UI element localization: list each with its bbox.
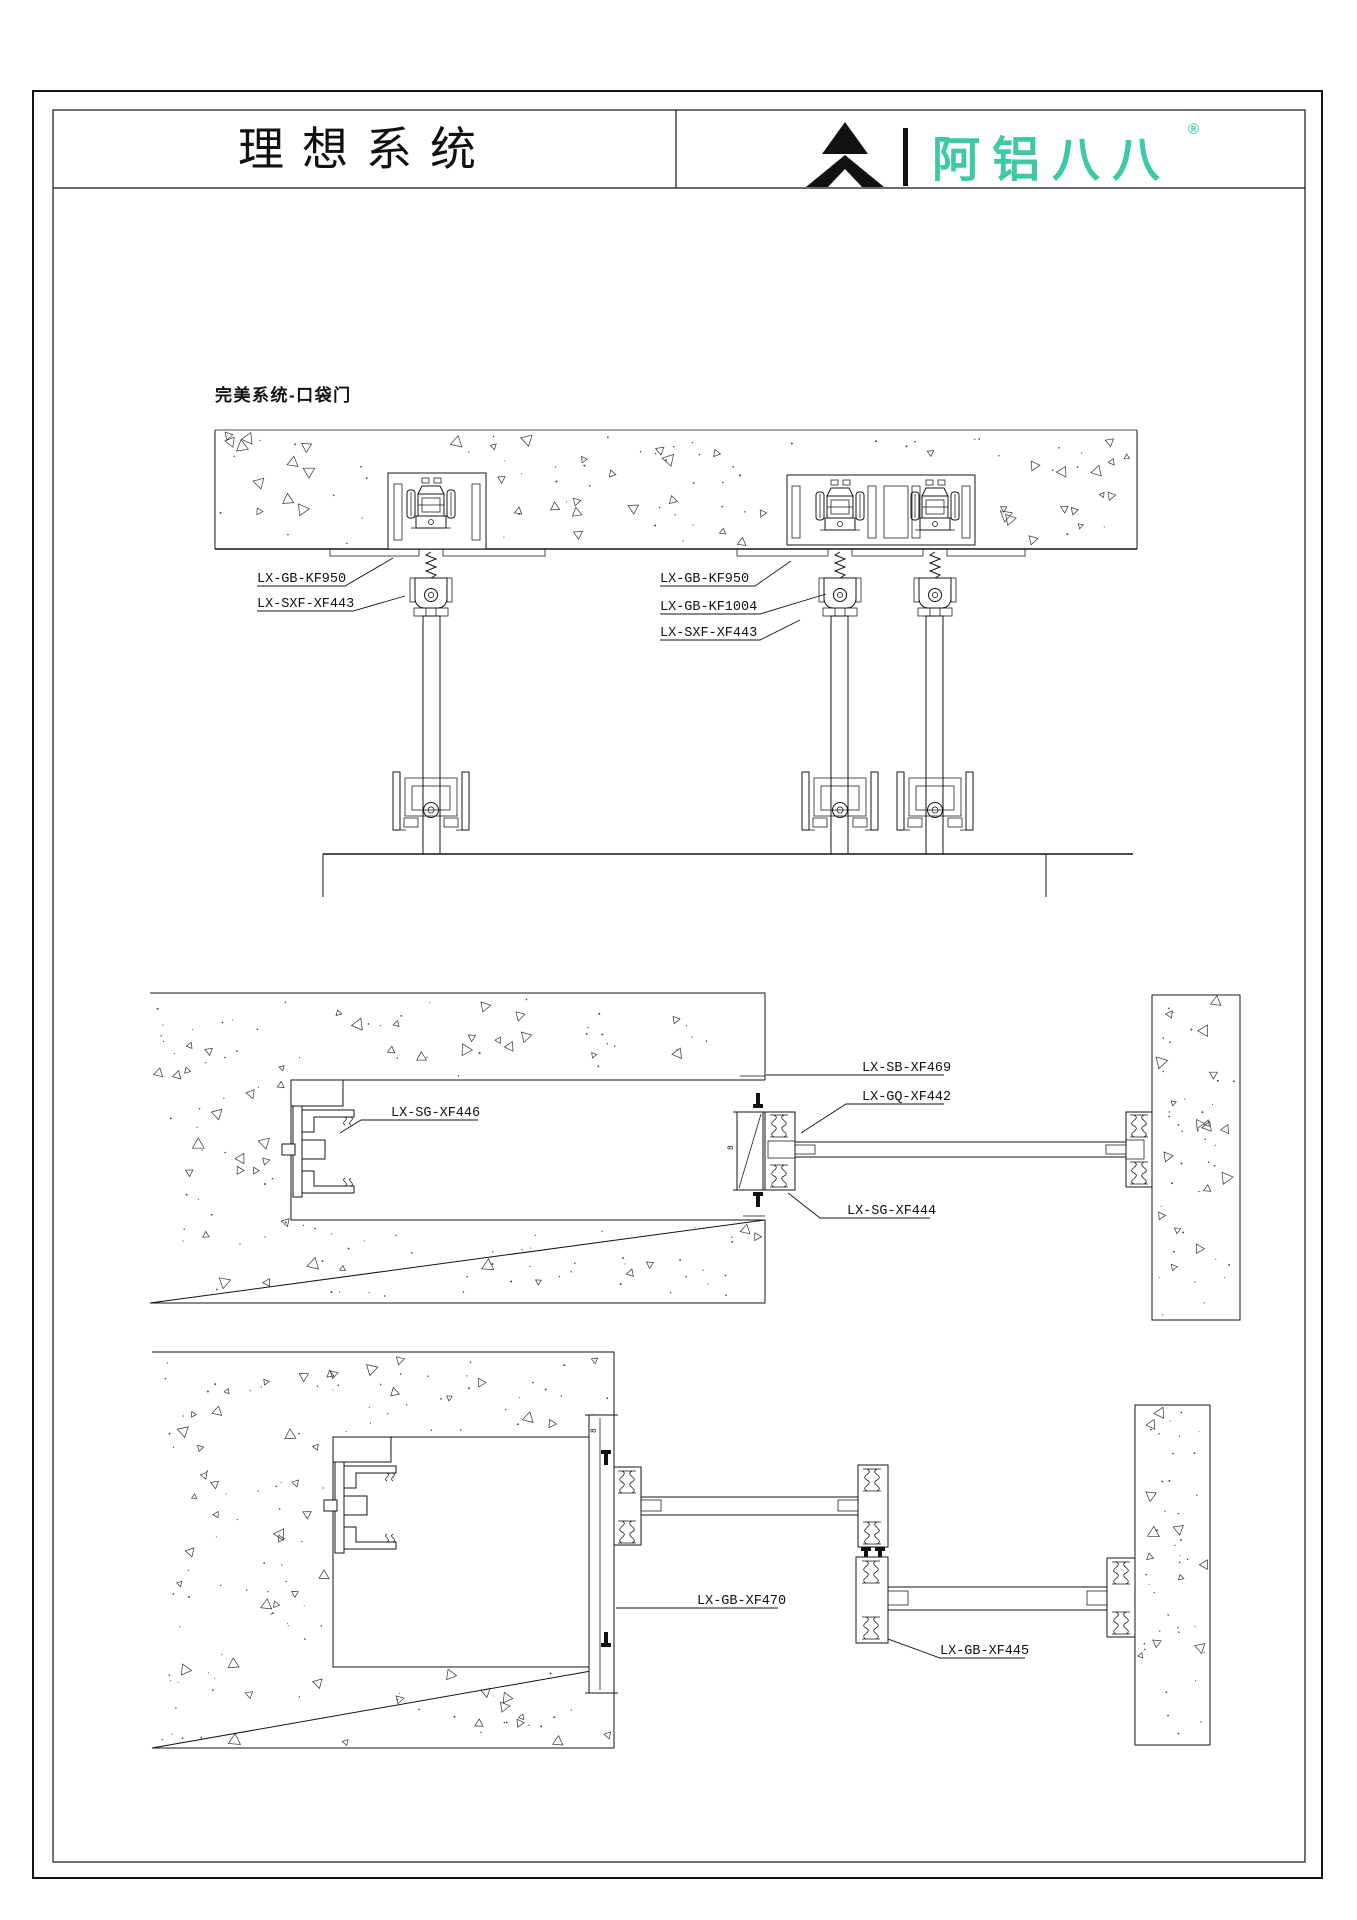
logo-chevron-icon [806,155,884,187]
cad-canvas: 理想系统 阿铝八八 ® 完美系统-口袋门 [0,0,1357,1920]
part-label: LX-GB-XF445 [940,1644,1029,1659]
logo-bar [903,128,908,186]
track-housing-single [388,473,486,549]
center-stile [856,1465,888,1643]
pocket-door-panel [795,1142,1126,1157]
upper-door-panel [641,1497,858,1515]
part-label: LX-SXF-XF443 [660,626,757,641]
registered-mark: ® [1188,121,1199,138]
pocket-profile [324,1462,396,1553]
pocket-jamb: 8 [727,1093,795,1207]
brand-logo: 阿铝八八 ® [806,121,1199,187]
part-label: LX-SXF-XF443 [257,597,354,612]
title-block: 理想系统 阿铝八八 ® [238,121,1199,187]
pocket-liner-box [333,1437,391,1462]
part-label: LX-SG-XF446 [391,1106,480,1121]
sheet-title: 理想系统 [238,124,494,175]
part-label: LX-GB-KF1004 [660,600,757,615]
pocket-jamb: 8 [585,1415,641,1693]
part-label: LX-GB-KF950 [257,572,346,587]
door-panel [423,616,440,854]
part-label: LX-SB-XF469 [862,1061,951,1076]
right-jamb-profile [1107,1558,1135,1637]
pocket-profile [282,1106,354,1197]
section-heading: 完美系统-口袋门 [215,385,352,405]
pocket-liner-box [291,1080,343,1106]
track-housing-double [787,475,975,545]
bottom-detail-drawing: 8 [152,1352,1210,1748]
door-panel [831,616,848,854]
middle-detail-drawing: 8 LX-SB-XF469 LX-GQ-XF442 LX-SG-XF446 LX… [150,993,1240,1320]
right-jamb-profile [1126,1112,1152,1187]
top-labels: LX-GB-KF950 LX-SXF-XF443 LX-GB-KF950 LX-… [257,558,826,641]
floor-line [323,854,1133,897]
part-label: LX-GB-KF950 [660,572,749,587]
brand-name: 阿铝八八 [932,134,1172,187]
part-label: LX-GQ-XF442 [862,1090,951,1105]
weld-mark: 8 [590,1428,599,1433]
logo-triangle-icon [822,122,868,154]
door-panel [926,616,943,854]
drawing-sheet: 理想系统 阿铝八八 ® 完美系统-口袋门 [0,0,1357,1920]
top-detail-drawing: 完美系统-口袋门 [215,385,1137,897]
middle-labels: LX-SB-XF469 LX-GQ-XF442 LX-SG-XF446 LX-S… [340,1061,951,1219]
weld-mark: 8 [727,1145,736,1150]
ceiling-trim [330,549,1025,556]
lower-door-panel [888,1587,1107,1610]
part-label: LX-GB-XF470 [697,1594,786,1609]
part-label: LX-SG-XF444 [847,1204,936,1219]
